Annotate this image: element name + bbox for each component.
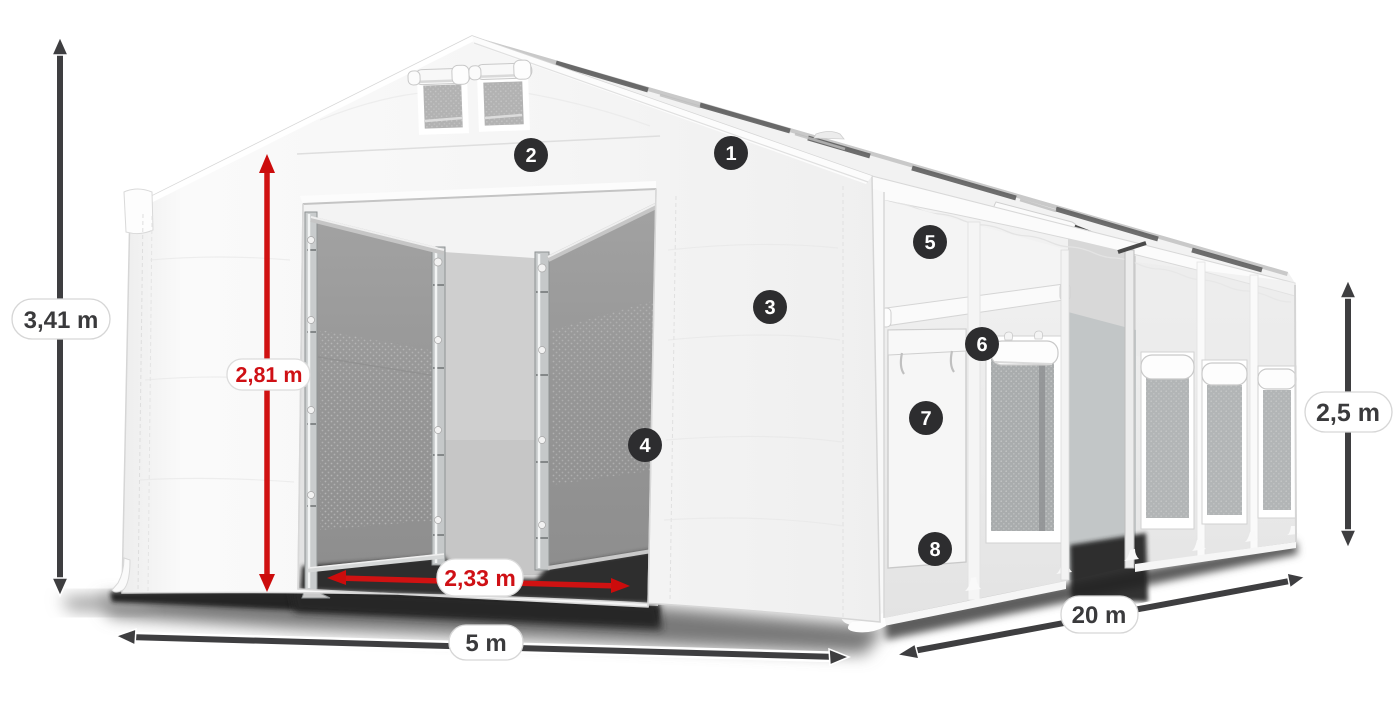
svg-text:2,5 m: 2,5 m xyxy=(1316,399,1380,427)
svg-text:2,33 m: 2,33 m xyxy=(444,565,516,591)
svg-text:5 m: 5 m xyxy=(465,630,506,657)
svg-text:3: 3 xyxy=(764,297,775,319)
svg-text:3,41 m: 3,41 m xyxy=(24,307,99,334)
svg-text:6: 6 xyxy=(976,334,987,356)
svg-text:2,81 m: 2,81 m xyxy=(236,363,303,387)
svg-text:1: 1 xyxy=(725,143,736,165)
svg-text:20 m: 20 m xyxy=(1072,602,1127,629)
svg-text:2: 2 xyxy=(525,145,536,167)
svg-text:7: 7 xyxy=(920,408,931,430)
svg-text:8: 8 xyxy=(929,539,940,561)
svg-text:5: 5 xyxy=(924,232,935,254)
svg-text:4: 4 xyxy=(639,435,651,457)
